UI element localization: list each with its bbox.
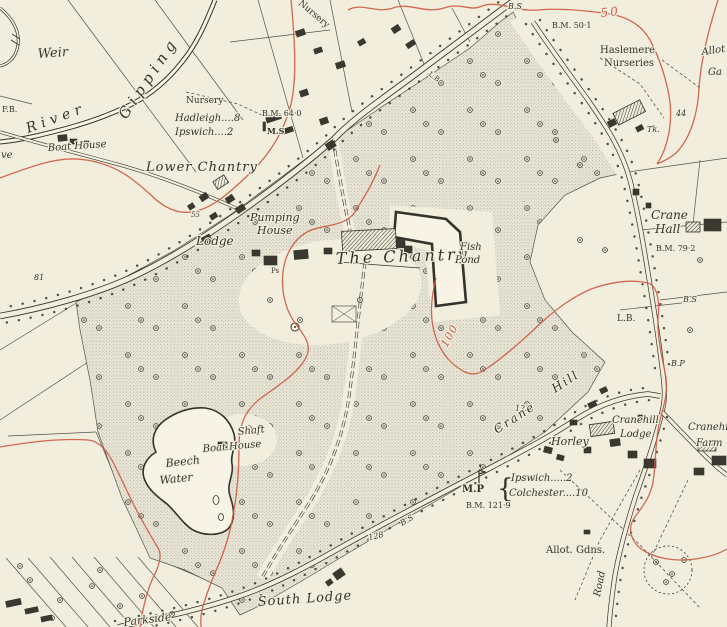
label-44: 44	[675, 109, 686, 118]
label-haslemere-1: Haslemere	[600, 45, 655, 56]
label-grove-partial: ve	[1, 150, 13, 161]
label-cranehill-lodge-2: Lodge	[619, 429, 651, 440]
label-horley: Horley	[550, 435, 590, 448]
label-lodge: Lodge	[195, 234, 234, 248]
os-map: Weir River Gipping F.B. Boat House ve Nu…	[0, 0, 727, 627]
map-canvas: Weir River Gipping F.B. Boat House ve Nu…	[0, 0, 727, 627]
label-hadleigh-milestone: Hadleigh....8	[174, 113, 240, 124]
label-ipswich-milestone: Ipswich....2	[174, 127, 233, 138]
label-pumping-house: House	[256, 224, 293, 237]
milestone	[263, 122, 266, 131]
label-bs-east: B.S	[682, 295, 697, 304]
label-55: 55	[191, 211, 200, 219]
label-allot-gdns: Allot. Gdns.	[545, 545, 605, 556]
label-ms: M.S	[267, 126, 285, 136]
label-81: 81	[34, 273, 44, 282]
label-bp-east: B.P	[670, 359, 685, 368]
label-cranehill-lodge-1: Cranehill	[612, 415, 659, 426]
label-haslemere-2: Nurseries	[604, 58, 654, 69]
label-fish: Fish	[459, 242, 482, 253]
label-pumping: Pumping	[249, 211, 300, 224]
label-bm-64: B.M. 64·0	[262, 109, 302, 118]
label-ps: Ps	[271, 267, 280, 275]
label-cranehill-farm-2: Farm	[695, 438, 722, 449]
label-weir: Weir	[37, 45, 69, 62]
label-mp-ipswich: Ipswich.....2	[510, 473, 573, 484]
label-fb: F.B.	[2, 105, 17, 114]
label-tk: Tk.	[647, 125, 660, 134]
label-cranehill-farm-1: Cranehill	[688, 422, 727, 433]
label-bs-top: B.S	[507, 2, 522, 11]
label-lower-chantry: Lower Chantry	[145, 160, 258, 175]
label-bm-79: B.M. 79·2	[656, 244, 696, 253]
label-bm-50: B.M. 50·1	[552, 21, 592, 30]
label-pond: Pond	[454, 255, 480, 266]
label-gardens-edge: Ga	[708, 67, 722, 78]
label-bm-121: B.M. 121·9	[466, 501, 511, 510]
label-contour-50: 50	[600, 4, 621, 20]
label-crane-hall-1: Crane	[651, 208, 688, 222]
label-mp: M.P	[462, 484, 485, 495]
label-mp-colchester: Colchester....10	[509, 488, 589, 499]
label-lb-east: L.B.	[617, 314, 635, 324]
label-nursery-plot: Nursery	[186, 96, 224, 106]
label-crane-hall-2: Hall	[654, 222, 680, 236]
